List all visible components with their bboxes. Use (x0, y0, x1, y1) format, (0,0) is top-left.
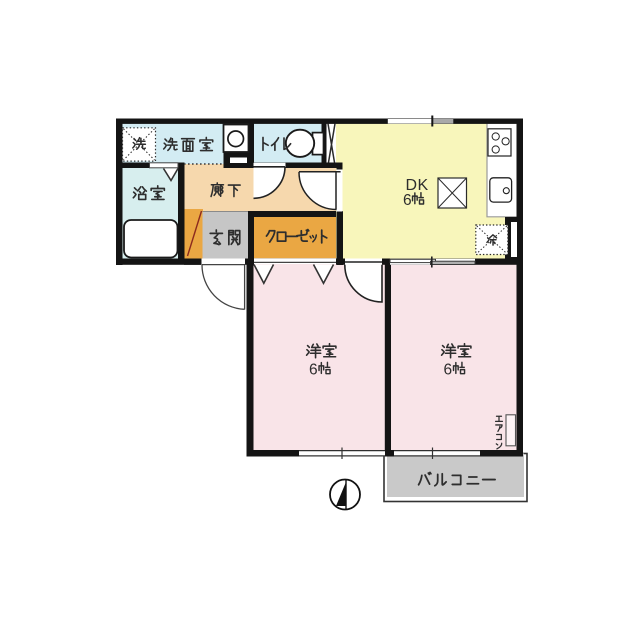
svg-text:6: 6 (403, 192, 412, 209)
svg-text:6: 6 (444, 362, 453, 379)
svg-text:6: 6 (309, 362, 318, 379)
